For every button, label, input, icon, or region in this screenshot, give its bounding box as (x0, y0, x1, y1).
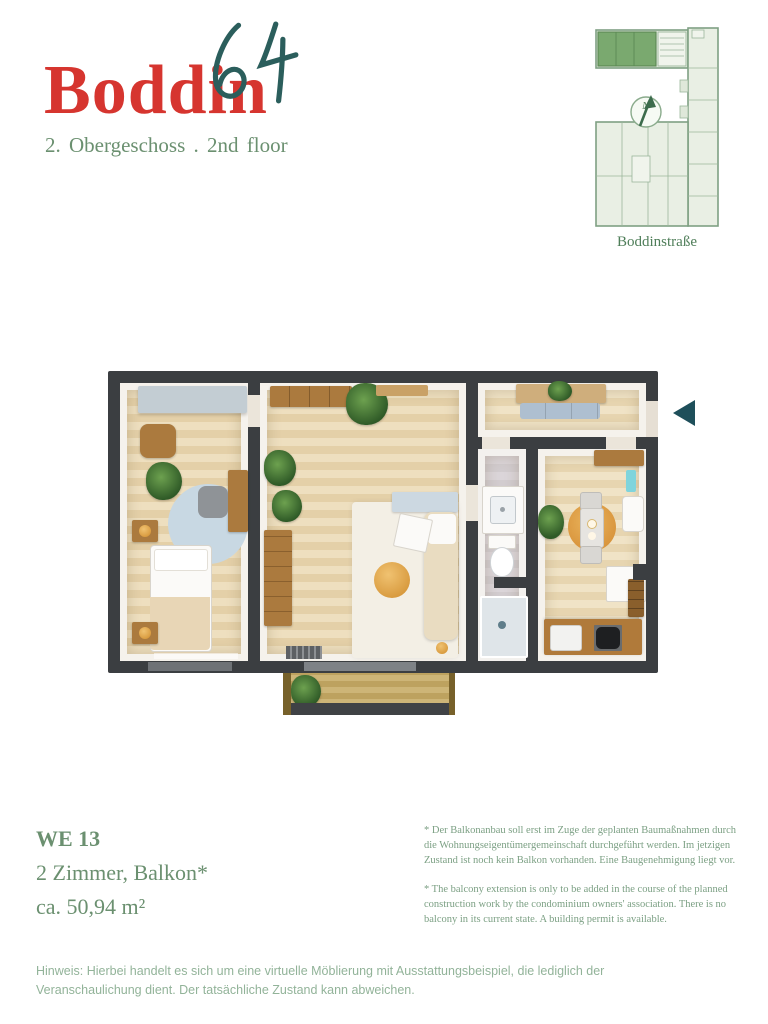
logo-number-64 (198, 16, 316, 120)
wall-shelf (376, 385, 428, 396)
floor-lamp (436, 642, 448, 654)
console-table (392, 492, 458, 512)
unit-area: ca. 50,94 m² (36, 890, 208, 924)
table-lamp (139, 627, 151, 639)
sink-drain (500, 507, 505, 512)
desk-chair (198, 486, 228, 518)
floor-label: 2. Obergeschoss . 2nd floor (45, 133, 288, 158)
toilet-bowl (490, 547, 514, 577)
radiator (286, 646, 322, 659)
shower-drain (498, 621, 506, 629)
room-kitchen (538, 449, 646, 661)
wardrobe (138, 386, 247, 413)
disclaimer-english: * The balcony extension is only to be ad… (424, 882, 742, 928)
siteplan-highlighted-unit (598, 32, 656, 66)
balcony-glass-door (304, 662, 416, 671)
room-hallway (478, 383, 646, 437)
coffee-table (393, 513, 433, 553)
bathroom-partition-wall (494, 577, 526, 588)
balcony (283, 673, 455, 715)
floor-plan (108, 371, 658, 673)
entrance-arrow-icon (673, 400, 695, 426)
sofa-throw (428, 514, 456, 544)
bathroom-door-opening (482, 437, 510, 449)
balcony-disclaimers: * Der Balkonanbau soll erst im Zuge der … (424, 823, 742, 940)
unit-id: WE 13 (36, 822, 208, 856)
compass-icon: N (631, 95, 661, 127)
kitchen-wall-notch (633, 564, 646, 580)
plant (146, 462, 182, 500)
bed-pillow (154, 549, 208, 571)
siteplan-balcony-mark (680, 80, 688, 92)
disclaimer-german: * Der Balkonanbau soll erst im Zuge der … (424, 823, 742, 869)
bench-cushions (520, 403, 600, 419)
floor-mat (154, 653, 238, 659)
siteplan-balcony-mark (680, 106, 688, 118)
kitchen-shelf (628, 579, 644, 617)
bed-blanket (150, 597, 210, 650)
desk (228, 470, 248, 532)
sideboard (270, 386, 352, 407)
pendant-lamps (587, 519, 597, 529)
hand-towel (626, 470, 636, 492)
armchair (140, 424, 176, 458)
boiler (622, 496, 644, 532)
plant (272, 490, 302, 522)
siteplan-stairwell (658, 32, 686, 66)
street-label: Boddinstraße (586, 234, 728, 251)
entrance-door-opening (646, 401, 658, 437)
kitchen-door-opening (606, 437, 636, 449)
room-living (260, 383, 466, 661)
wall-cabinet (594, 450, 644, 466)
footer-note: Hinweis: Hierbei handelt es sich um eine… (36, 962, 700, 1001)
room-bathroom (478, 449, 526, 661)
balcony-railing (283, 703, 455, 715)
site-plan: N (592, 24, 722, 230)
bookshelf (264, 530, 292, 626)
plant (548, 381, 572, 401)
plant (538, 505, 564, 539)
kitchen-sink (550, 625, 582, 651)
bedroom-window (148, 662, 232, 671)
unit-info: WE 13 2 Zimmer, Balkon* ca. 50,94 m² (36, 822, 208, 924)
dining-chair (580, 546, 602, 564)
living-door-opening (466, 485, 478, 521)
room-bedroom (120, 383, 248, 661)
stove (594, 625, 622, 651)
balcony-frame-left (283, 673, 291, 715)
balcony-frame-right (449, 673, 455, 715)
plant (264, 450, 296, 486)
unit-rooms: 2 Zimmer, Balkon* (36, 856, 208, 890)
bedroom-door-opening (248, 395, 260, 427)
pouf (374, 562, 410, 598)
table-lamp (139, 525, 151, 537)
